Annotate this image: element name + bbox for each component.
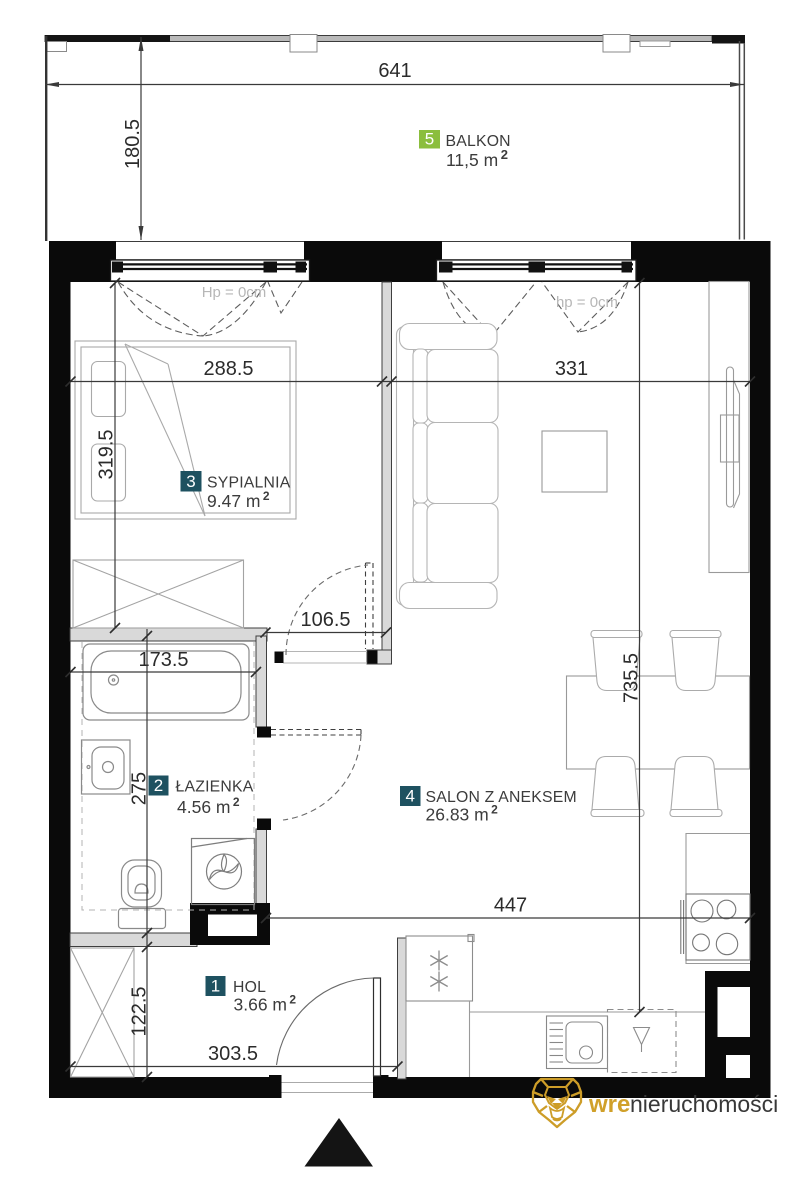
svg-text:331: 331 <box>555 358 588 380</box>
svg-text:Hp = 0cm: Hp = 0cm <box>202 284 267 301</box>
svg-text:nieruchomości: nieruchomości <box>630 1091 778 1117</box>
svg-text:hp = 0cm: hp = 0cm <box>556 294 618 311</box>
svg-text:303.5: 303.5 <box>208 1043 258 1065</box>
svg-text:26.83 m 2: 26.83 m 2 <box>426 803 499 825</box>
svg-text:319.5: 319.5 <box>96 429 118 479</box>
svg-text:wre: wre <box>588 1091 630 1118</box>
svg-text:4: 4 <box>405 787 414 806</box>
svg-text:641: 641 <box>378 60 411 82</box>
svg-text:SALON Z ANEKSEM: SALON Z ANEKSEM <box>426 789 577 806</box>
svg-text:173.5: 173.5 <box>138 649 188 671</box>
svg-text:9.47 m 2: 9.47 m 2 <box>207 489 270 511</box>
svg-text:122.5: 122.5 <box>129 986 151 1036</box>
svg-text:5: 5 <box>425 130 434 149</box>
svg-text:3: 3 <box>186 472 195 491</box>
svg-text:4.56 m 2: 4.56 m 2 <box>177 795 240 817</box>
svg-text:275: 275 <box>129 772 151 805</box>
svg-text:106.5: 106.5 <box>300 609 350 631</box>
svg-text:447: 447 <box>494 895 527 917</box>
svg-text:288.5: 288.5 <box>203 358 253 380</box>
svg-text:SYPIALNIA: SYPIALNIA <box>207 475 291 492</box>
svg-text:180.5: 180.5 <box>122 119 144 169</box>
svg-text:2: 2 <box>154 776 163 795</box>
svg-text:1: 1 <box>211 977 220 996</box>
svg-text:3.66 m 2: 3.66 m 2 <box>234 993 297 1015</box>
svg-text:735.5: 735.5 <box>621 653 643 703</box>
svg-text:ŁAZIENKA: ŁAZIENKA <box>176 779 254 796</box>
svg-text:HOL: HOL <box>233 979 266 996</box>
